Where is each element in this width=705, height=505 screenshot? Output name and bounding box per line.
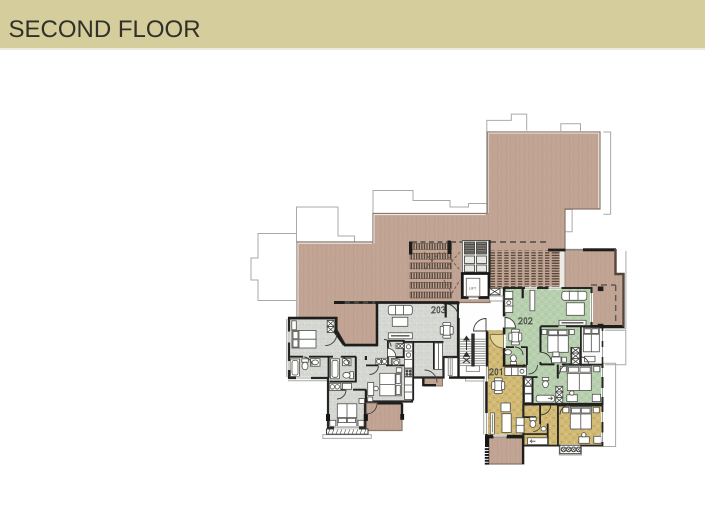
svg-text:SECOND FLOOR: SECOND FLOOR bbox=[8, 16, 200, 43]
svg-text:LIFT: LIFT bbox=[469, 287, 477, 291]
